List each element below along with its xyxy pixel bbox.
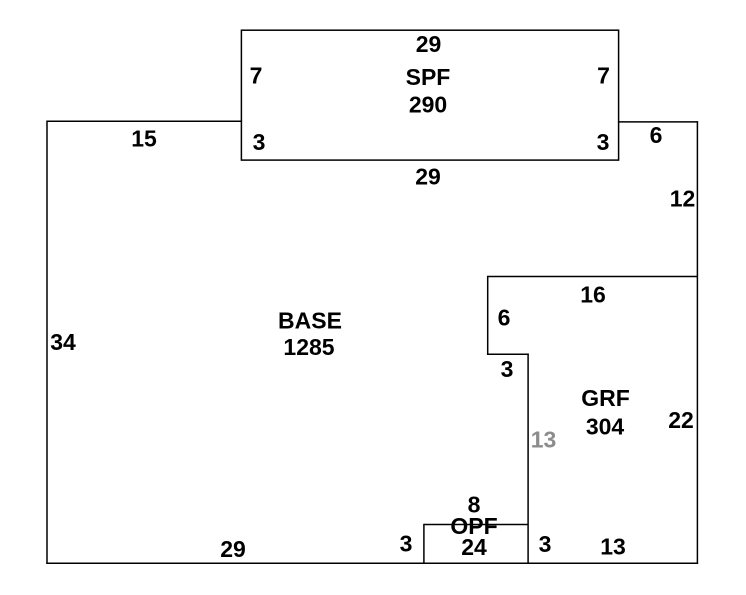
svg-text:29: 29 (415, 163, 441, 189)
svg-text:3: 3 (501, 356, 514, 382)
svg-text:13: 13 (600, 533, 626, 559)
svg-text:6: 6 (650, 122, 663, 148)
svg-text:12: 12 (670, 185, 696, 211)
svg-text:29: 29 (416, 31, 442, 57)
svg-text:304: 304 (586, 413, 625, 439)
svg-text:SPF: SPF (406, 64, 451, 90)
svg-text:29: 29 (220, 536, 246, 562)
svg-text:6: 6 (498, 304, 511, 330)
svg-text:7: 7 (597, 62, 610, 88)
svg-text:15: 15 (131, 125, 157, 151)
svg-text:3: 3 (253, 129, 266, 155)
svg-text:7: 7 (250, 62, 263, 88)
svg-text:24: 24 (461, 534, 487, 560)
svg-text:34: 34 (50, 329, 76, 355)
svg-text:3: 3 (400, 530, 413, 556)
svg-text:290: 290 (409, 91, 447, 117)
svg-text:13: 13 (531, 426, 557, 452)
svg-text:22: 22 (668, 407, 694, 433)
svg-text:GRF: GRF (581, 385, 630, 411)
svg-text:1285: 1285 (283, 334, 334, 360)
svg-text:3: 3 (539, 531, 552, 557)
svg-text:3: 3 (597, 129, 610, 155)
svg-text:BASE: BASE (278, 307, 342, 333)
svg-text:16: 16 (580, 281, 606, 307)
